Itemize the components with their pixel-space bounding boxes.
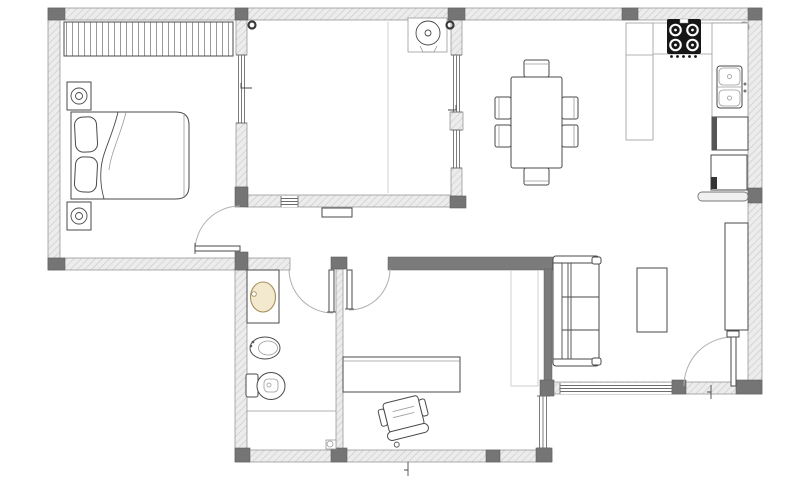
knobs: [670, 55, 697, 58]
burner: [669, 39, 682, 52]
pillow: [74, 156, 98, 192]
dining-chair: [524, 60, 549, 77]
office-chair: [377, 394, 435, 450]
dining-chair: [562, 97, 578, 119]
faucet: [744, 83, 747, 86]
door-leaf: [195, 246, 240, 251]
entry-door: [684, 331, 739, 386]
window-living-south: [560, 383, 672, 394]
kitchen-sink: [717, 66, 747, 108]
toilet: [246, 373, 285, 400]
bedroom-door: [195, 206, 240, 254]
pillow: [74, 116, 98, 152]
kitchen: [626, 19, 749, 201]
window-study-east: [537, 396, 550, 448]
dining-chair: [562, 125, 578, 147]
double-bed: [71, 112, 189, 199]
cooktop: [667, 19, 701, 58]
shaft-outline: [511, 270, 538, 386]
window-secondary-south: [281, 196, 298, 207]
washing-machine: [408, 18, 447, 52]
door-leaf: [329, 270, 334, 312]
secondary-room-items: [241, 18, 456, 217]
built-in-appliance-lower: [711, 155, 747, 190]
nightstand-upper: [67, 82, 91, 110]
door-leaf: [731, 337, 736, 386]
study-door: [345, 269, 390, 310]
window-bedroom-partition: [236, 55, 247, 123]
door-leaf: [347, 270, 352, 309]
floor-plan-canvas: [0, 0, 800, 500]
breakfast-bar: [698, 192, 748, 201]
door-handle: [727, 331, 739, 337]
nightstand-lower: [67, 202, 91, 230]
washbasin: [251, 282, 276, 312]
threshold-tick-south: [404, 462, 408, 476]
desk: [343, 357, 460, 392]
bathroom-fixtures: [246, 270, 336, 449]
sofa: [553, 256, 601, 366]
burner: [686, 24, 699, 37]
wall-hook-left: [249, 22, 256, 29]
basin-faucet: [252, 292, 257, 297]
floor-plan-drawing: [0, 0, 800, 500]
counter-peninsula: [626, 23, 653, 140]
bidet: [250, 337, 280, 359]
built-in-appliance-upper: [712, 117, 748, 150]
dining-chair: [524, 168, 549, 185]
sideboard: [725, 223, 748, 330]
radiator: [322, 208, 352, 217]
dining-chair: [495, 97, 511, 119]
wall-hook-right: [447, 22, 454, 29]
dining-set: [495, 60, 578, 185]
bedroom-furniture: [64, 22, 233, 230]
wardrobe: [64, 22, 233, 56]
dining-chair: [495, 125, 511, 147]
faucet: [744, 90, 747, 93]
floor-drain: [326, 440, 336, 449]
bathroom-door: [289, 269, 336, 313]
burner: [669, 24, 682, 37]
window-secondary-lower: [451, 130, 462, 168]
dining-table: [511, 77, 562, 168]
window-secondary-upper: [451, 55, 462, 112]
burner: [686, 39, 699, 52]
coffee-table: [637, 268, 667, 332]
